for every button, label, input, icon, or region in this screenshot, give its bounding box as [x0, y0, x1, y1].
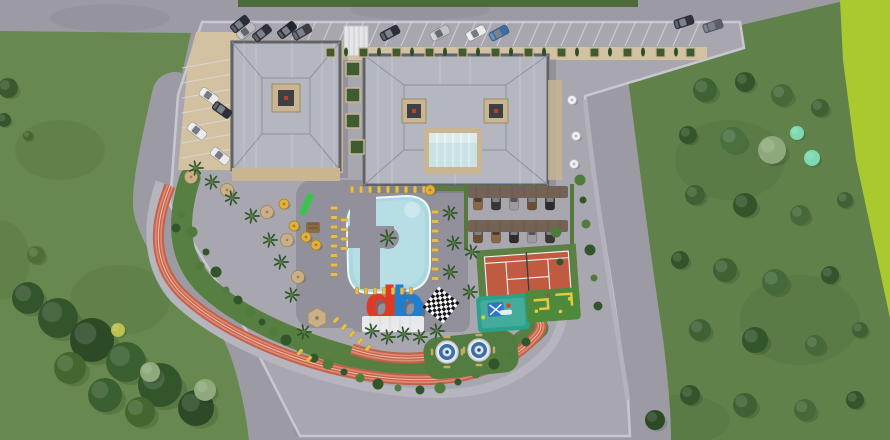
sun-lounger [432, 267, 439, 271]
skylight [272, 84, 300, 112]
sun-lounger [331, 216, 338, 220]
conifer [443, 48, 447, 57]
sun-lounger [331, 225, 338, 229]
bench [476, 364, 483, 366]
sun-lounger [409, 288, 413, 295]
planter [346, 114, 360, 128]
bench [444, 366, 451, 368]
shrub [489, 359, 500, 370]
db-logo: d b d b [362, 277, 427, 335]
shrub [179, 212, 186, 219]
sun-lounger [331, 273, 338, 277]
children-playground [476, 293, 530, 333]
shrub [395, 385, 402, 392]
conifer [608, 48, 612, 57]
planter [656, 48, 665, 57]
sun-lounger [331, 244, 338, 248]
shrub [356, 374, 365, 383]
sun-lounger [331, 254, 338, 258]
shrub [234, 296, 243, 305]
bench [493, 347, 495, 354]
conifer [542, 48, 546, 57]
sun-lounger [341, 218, 348, 222]
skylight [402, 99, 426, 123]
sun-lounger [368, 186, 372, 193]
bench [431, 349, 433, 356]
shrub [522, 338, 531, 347]
sun-lounger [391, 288, 395, 295]
planter [346, 62, 360, 76]
sun-lounger [400, 288, 404, 295]
shrub [455, 379, 462, 386]
building-a [230, 40, 348, 181]
shrub [196, 262, 205, 271]
shrub [582, 220, 591, 229]
planter [326, 48, 335, 57]
sun-lounger [331, 235, 338, 239]
conifer [575, 48, 579, 57]
conifer [674, 48, 678, 57]
sun-lounger [413, 186, 417, 193]
sun-lounger [355, 288, 359, 295]
planter [392, 48, 401, 57]
shrub [211, 267, 222, 278]
east-terrace [548, 80, 562, 180]
shrub [281, 335, 292, 346]
shrub [585, 245, 596, 256]
mini-golf [525, 287, 581, 323]
shrub [580, 197, 587, 204]
sun-lounger [341, 228, 348, 232]
conifer [509, 48, 513, 57]
shrub [245, 307, 256, 318]
planter [686, 48, 695, 57]
shrub [373, 379, 384, 390]
building-b [362, 53, 562, 193]
sun-lounger [432, 258, 439, 262]
sun-lounger [432, 248, 439, 252]
pool-swirl [404, 202, 420, 218]
shrub [203, 249, 210, 256]
gazebo [308, 308, 326, 328]
shrub [270, 328, 279, 337]
conifer [410, 48, 414, 57]
shrub [172, 224, 181, 233]
sun-lounger [432, 210, 439, 214]
conifer [641, 48, 645, 57]
aerial-scene: d b d b [0, 0, 890, 440]
sun-lounger [377, 186, 381, 193]
skylight [484, 99, 508, 123]
sun-lounger [404, 186, 408, 193]
shrub [575, 175, 586, 186]
sun-lounger [373, 288, 377, 295]
slide [500, 309, 512, 315]
bench [463, 347, 465, 354]
sun-lounger [341, 237, 348, 241]
conifer [344, 48, 348, 57]
shrub [416, 386, 425, 395]
shrub [223, 287, 230, 294]
sun-lounger [432, 220, 439, 224]
sun-lounger [364, 288, 368, 295]
sun-lounger [432, 277, 439, 281]
sun-lounger [331, 263, 338, 267]
sun-lounger [359, 186, 363, 193]
planter [350, 140, 364, 154]
planter [590, 48, 599, 57]
shrub [472, 370, 481, 379]
shrub [591, 275, 598, 282]
planter [458, 48, 467, 57]
shrub [551, 227, 562, 238]
sun-lounger [386, 186, 390, 193]
shrub [435, 383, 446, 394]
south-terrace [232, 168, 340, 181]
sun-lounger [432, 229, 439, 233]
conifer [377, 48, 381, 57]
site-plan-render: d b d b [0, 0, 890, 440]
shrub [507, 351, 514, 358]
sun-lounger [432, 239, 439, 243]
planter [359, 48, 368, 57]
conifer [476, 48, 480, 57]
top-green-strip [238, 0, 638, 7]
bench [444, 336, 451, 338]
sun-lounger [341, 247, 348, 251]
bench [476, 334, 483, 336]
pool-deck-notch [350, 196, 376, 226]
shrub [341, 369, 348, 376]
planter [491, 48, 500, 57]
sun-lounger [350, 186, 354, 193]
sun-lounger [331, 206, 338, 210]
sun-lounger [382, 288, 386, 295]
shrub [323, 359, 334, 370]
glass-atrium [424, 128, 482, 174]
sun-lounger [395, 186, 399, 193]
planter [425, 48, 434, 57]
planter [557, 48, 566, 57]
shrub [594, 302, 603, 311]
planter [623, 48, 632, 57]
planter [524, 48, 533, 57]
planter [346, 88, 360, 102]
shrub [259, 319, 266, 326]
shrub [557, 259, 564, 266]
shrub [187, 227, 198, 238]
